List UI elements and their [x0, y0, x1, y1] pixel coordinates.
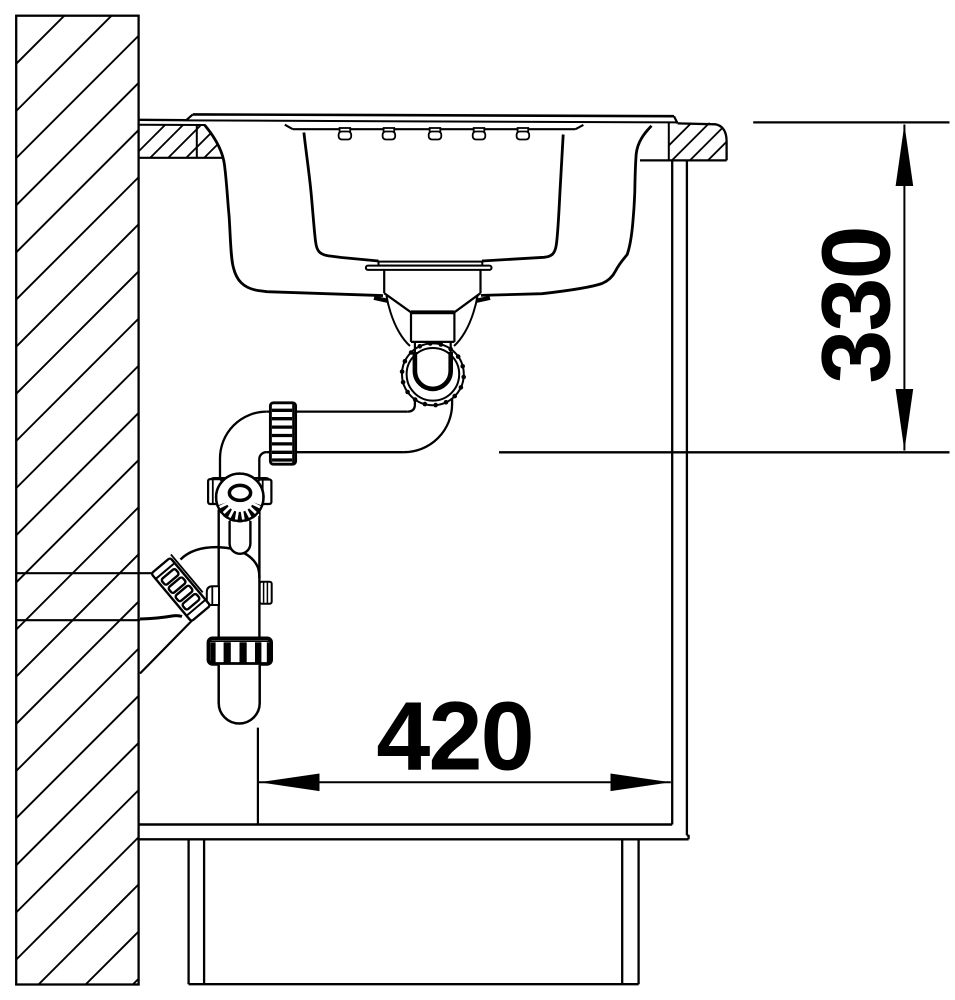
- svg-text:420: 420: [376, 681, 532, 790]
- svg-text:330: 330: [802, 227, 911, 383]
